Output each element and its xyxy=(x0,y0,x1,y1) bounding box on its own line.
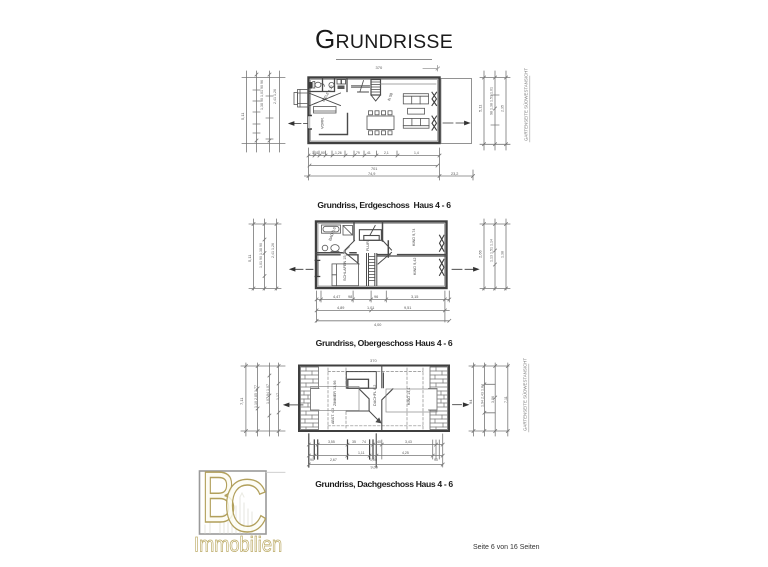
svg-text:370: 370 xyxy=(370,358,377,363)
svg-text:98 1,38 1,51 1,01: 98 1,38 1,51 1,01 xyxy=(490,87,494,115)
svg-text:9,09: 9,09 xyxy=(371,466,378,470)
svg-text:41: 41 xyxy=(367,151,371,155)
svg-text:1,26: 1,26 xyxy=(335,151,342,155)
svg-text:7,11: 7,11 xyxy=(239,397,244,405)
svg-text:4,47: 4,47 xyxy=(333,295,340,299)
svg-text:98: 98 xyxy=(348,295,352,299)
svg-text:4,25: 4,25 xyxy=(402,451,409,455)
svg-text:KIND 9,74: KIND 9,74 xyxy=(412,228,416,246)
svg-text:1,05: 1,05 xyxy=(370,458,377,462)
svg-text:2,41 1,26: 2,41 1,26 xyxy=(273,89,277,104)
svg-text:3,43: 3,43 xyxy=(405,440,412,444)
svg-text:1,01: 1,01 xyxy=(312,151,319,155)
svg-text:N 58: N 58 xyxy=(387,92,394,101)
svg-text:1,11: 1,11 xyxy=(358,451,365,455)
svg-text:4,89: 4,89 xyxy=(337,306,344,310)
svg-text:3,15: 3,15 xyxy=(411,295,418,299)
svg-text:1,10 2,85 1,77: 1,10 2,85 1,77 xyxy=(254,385,258,408)
svg-text:4,00: 4,00 xyxy=(374,323,381,327)
svg-text:2,67: 2,67 xyxy=(330,458,337,462)
svg-text:ABST. 4,3: ABST. 4,3 xyxy=(331,408,335,424)
svg-text:2,35: 2,35 xyxy=(501,105,505,112)
svg-text:90: 90 xyxy=(310,458,314,462)
svg-text:GARTENSEITE SÜDWESTANSICHT: GARTENSEITE SÜDWESTANSICHT xyxy=(523,358,528,431)
svg-text:BAD 5,6: BAD 5,6 xyxy=(328,227,337,242)
svg-text:1,38 90 1,01 90 96: 1,38 90 1,01 90 96 xyxy=(260,80,264,110)
svg-text:40: 40 xyxy=(377,440,381,444)
svg-text:1,01 90 1,38 90: 1,01 90 1,38 90 xyxy=(259,243,263,268)
svg-text:1,13 1,51 1,14: 1,13 1,51 1,14 xyxy=(490,239,494,262)
svg-text:1,38: 1,38 xyxy=(501,251,505,258)
svg-text:DACHFL 8,2: DACHFL 8,2 xyxy=(373,385,377,406)
svg-text:ZIMMER 13,96: ZIMMER 13,96 xyxy=(333,380,337,406)
svg-text:5,11: 5,11 xyxy=(247,254,252,262)
svg-text:1,07 94 1,07: 1,07 94 1,07 xyxy=(266,384,270,404)
svg-text:74: 74 xyxy=(362,440,366,444)
svg-text:2,66: 2,66 xyxy=(478,249,483,258)
svg-text:90: 90 xyxy=(434,458,438,462)
svg-text:VORR.: VORR. xyxy=(321,117,325,129)
svg-text:7,11: 7,11 xyxy=(504,396,508,403)
svg-text:3,55: 3,55 xyxy=(328,440,335,444)
svg-text:KIND 9,42: KIND 9,42 xyxy=(413,257,417,275)
svg-text:96: 96 xyxy=(374,295,378,299)
svg-text:5,11: 5,11 xyxy=(478,104,483,112)
svg-text:KIND 14,1: KIND 14,1 xyxy=(407,387,411,405)
svg-text:23,2: 23,2 xyxy=(451,172,458,176)
svg-text:1,17: 1,17 xyxy=(276,393,280,400)
svg-text:701: 701 xyxy=(371,167,377,171)
svg-text:79: 79 xyxy=(356,151,360,155)
svg-text:Immobilien: Immobilien xyxy=(194,533,282,556)
svg-text:370: 370 xyxy=(376,65,383,70)
svg-text:DIELE 1,13: DIELE 1,13 xyxy=(321,85,334,103)
svg-text:1,94 2,43 1,84: 1,94 2,43 1,84 xyxy=(480,384,484,407)
svg-text:9,51: 9,51 xyxy=(404,306,411,310)
svg-text:5,11: 5,11 xyxy=(240,112,245,120)
svg-text:1,01: 1,01 xyxy=(367,306,374,310)
svg-text:1,4: 1,4 xyxy=(414,151,419,155)
svg-text:35: 35 xyxy=(352,440,356,444)
svg-text:FLUR: FLUR xyxy=(366,241,370,251)
svg-text:2,41 1,26: 2,41 1,26 xyxy=(271,243,275,258)
svg-text:74,9: 74,9 xyxy=(368,172,375,176)
svg-text:94: 94 xyxy=(468,399,473,404)
svg-text:SCHLAFEN 15,92: SCHLAFEN 15,92 xyxy=(343,250,347,281)
svg-text:GARTENSEITE SÜDWESTANSICHT: GARTENSEITE SÜDWESTANSICHT xyxy=(524,68,529,141)
svg-text:90: 90 xyxy=(321,151,325,155)
svg-text:2,1: 2,1 xyxy=(384,151,389,155)
svg-text:3,86: 3,86 xyxy=(491,396,495,403)
